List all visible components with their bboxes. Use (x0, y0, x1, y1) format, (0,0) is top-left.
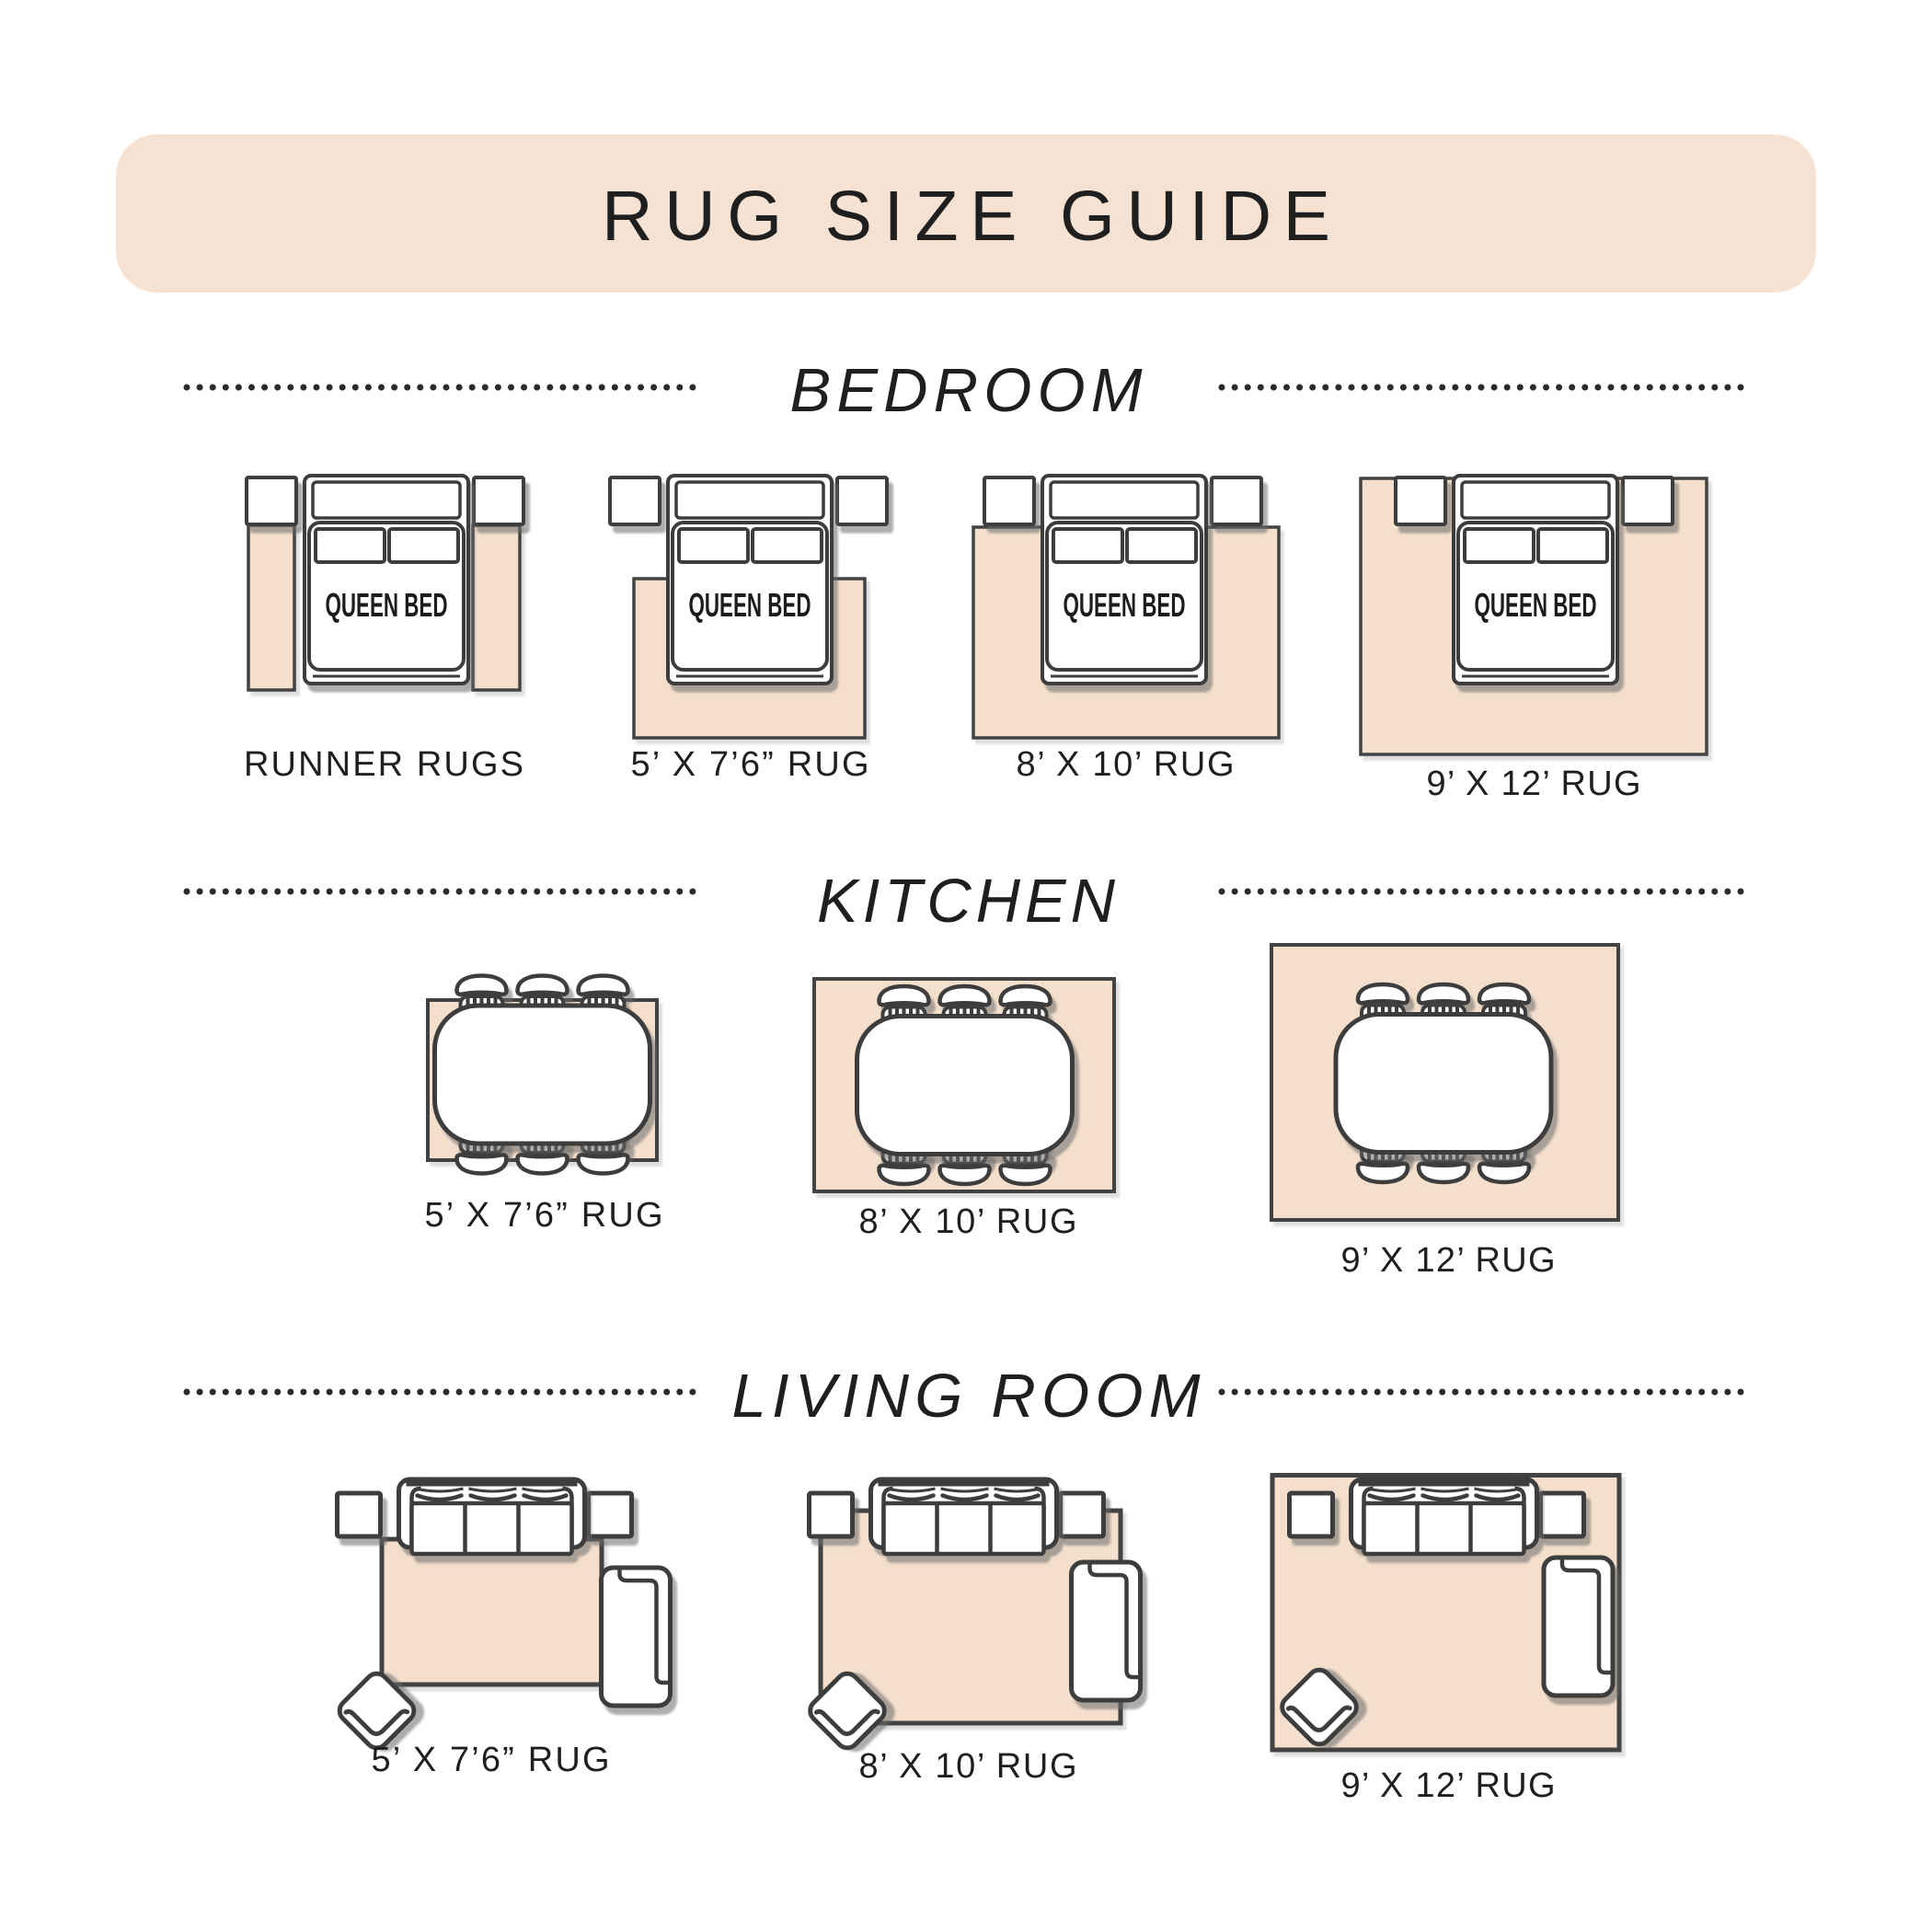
svg-text:9’ X 12’ RUG: 9’ X 12’ RUG (1341, 1766, 1556, 1805)
svg-text:5’ X 7’6” RUG: 5’ X 7’6” RUG (372, 1741, 610, 1779)
svg-text:5’ X 7’6” RUG: 5’ X 7’6” RUG (631, 745, 869, 784)
svg-text:9’ X 12’ RUG: 9’ X 12’ RUG (1341, 1241, 1556, 1280)
svg-text:8’ X 10’ RUG: 8’ X 10’ RUG (859, 1202, 1077, 1241)
svg-text:KITCHEN: KITCHEN (817, 867, 1116, 936)
svg-text:9’ X 12’ RUG: 9’ X 12’ RUG (1427, 765, 1641, 803)
svg-text:8’ X 10’ RUG: 8’ X 10’ RUG (1017, 745, 1235, 784)
svg-text:8’ X 10’ RUG: 8’ X 10’ RUG (859, 1747, 1077, 1786)
svg-text:5’ X 7’6” RUG: 5’ X 7’6” RUG (425, 1196, 663, 1235)
svg-text:RUNNER RUGS: RUNNER RUGS (244, 745, 523, 784)
